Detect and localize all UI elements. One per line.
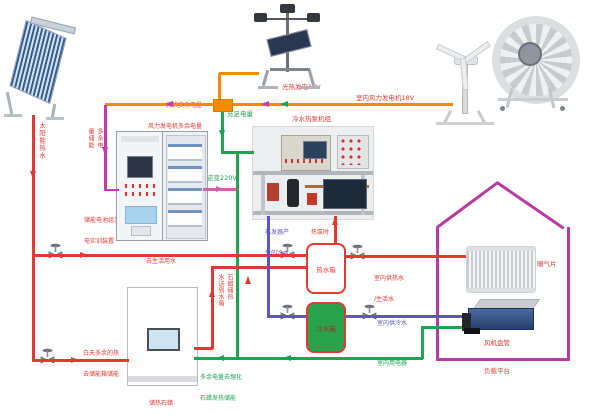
pipe-cold-inlet [267,315,308,318]
pipe-solar-to-paraffin [32,359,129,362]
cold-water-tank: 冷水箱 [306,302,346,353]
arrow-paraffin-right [71,357,79,363]
label-indoor-hot: 室内供热水 /生活水 [374,261,404,317]
arrow-flow-up [245,276,251,284]
arrow-return-up [209,289,215,297]
paraffin-storage-box [127,287,198,386]
house-roof-left [436,181,499,229]
pipe-paraffin-return-vertical [211,266,214,349]
arrow-domestic-right [80,252,88,258]
label-load-platform: 负载平台 [484,368,510,376]
solar-tracker-image [252,4,324,92]
label-indoor-appliance: 室内用电器 [377,360,407,368]
label-indoor-wind-gen: 室内风力发电机18V [356,95,414,103]
wire-green-fancoil-horizontal [421,326,467,329]
pipe-cold-to-fancoil [341,315,471,318]
wire-main-bus [105,103,453,106]
arrow-bus-left-1 [165,101,173,107]
label-melt-paraffin: 多余电量去熔化 石蜡发热储能 [200,360,242,416]
pipe-tank-to-radiator [341,255,468,258]
wire-storage-horizontal [104,189,119,192]
axial-fan-image [478,10,582,112]
pipe-paraffin-return-horizontal [211,266,308,269]
wire-green-fancoil-vertical [421,326,424,359]
solar-collector-image [4,20,84,120]
hot-water-tank-label: 热水箱 [316,264,336,274]
fan-coil-image [462,299,536,337]
cold-water-tank-label: 冷水箱 [316,323,336,333]
arrow-solar-down [30,171,36,179]
valve-icon [280,304,295,323]
battery-cabinet-rack [162,131,208,241]
arrow-heatpump-up [332,217,338,225]
house-roof-right [496,181,564,229]
wire-tracker-horizontal [219,72,259,75]
valve-icon [48,243,63,262]
arrow-inverter-right [216,186,224,192]
heat-pump-bench-image [252,126,374,220]
arrow-melt-left-2 [283,355,291,361]
junction-box [213,99,233,112]
arrow-bus-left-3 [280,101,288,107]
battery-cabinet-control [116,131,164,241]
arrow-bus-left-2 [261,101,269,107]
valve-icon [350,244,365,263]
label-paraffin-to-tank: 石蜡储热 水送到水箱 [216,274,233,307]
label-heat-pump-unit: 冷水热泵机组 [292,116,331,124]
energy-system-diagram: 热水箱 冷水箱 [0,0,600,419]
valve-icon [40,348,55,367]
label-day-excess: 白天多余的热 去储能箱储能 [83,336,119,392]
label-indoor-cold: 室内供冷水 [377,320,407,328]
arrow-green-down [219,130,225,138]
pipe-solar-down [32,115,35,361]
label-inverter: 逆变220V [207,175,237,183]
label-sufficient-power: 充足电量 [227,111,253,119]
wire-green-bottom [194,357,423,360]
hot-water-tank: 热水箱 [306,243,346,294]
arrow-storage-down [102,147,108,155]
arrow-melt-left-1 [216,355,224,361]
label-solar-hot-water: 太阳能热水 [37,122,45,160]
radiator-image [466,246,536,293]
label-battery-device: 储能电池组发 电实训装置 [84,203,120,259]
label-domestic-water: 去生活用水 [146,258,176,266]
pipe-evaporator-down [267,216,270,316]
label-paraffin-device: 储热石蜡 相变装置 [149,386,173,419]
pipe-paraffin-outlet [194,347,213,350]
label-excess-storage: 多余电 量储能 [86,128,103,149]
